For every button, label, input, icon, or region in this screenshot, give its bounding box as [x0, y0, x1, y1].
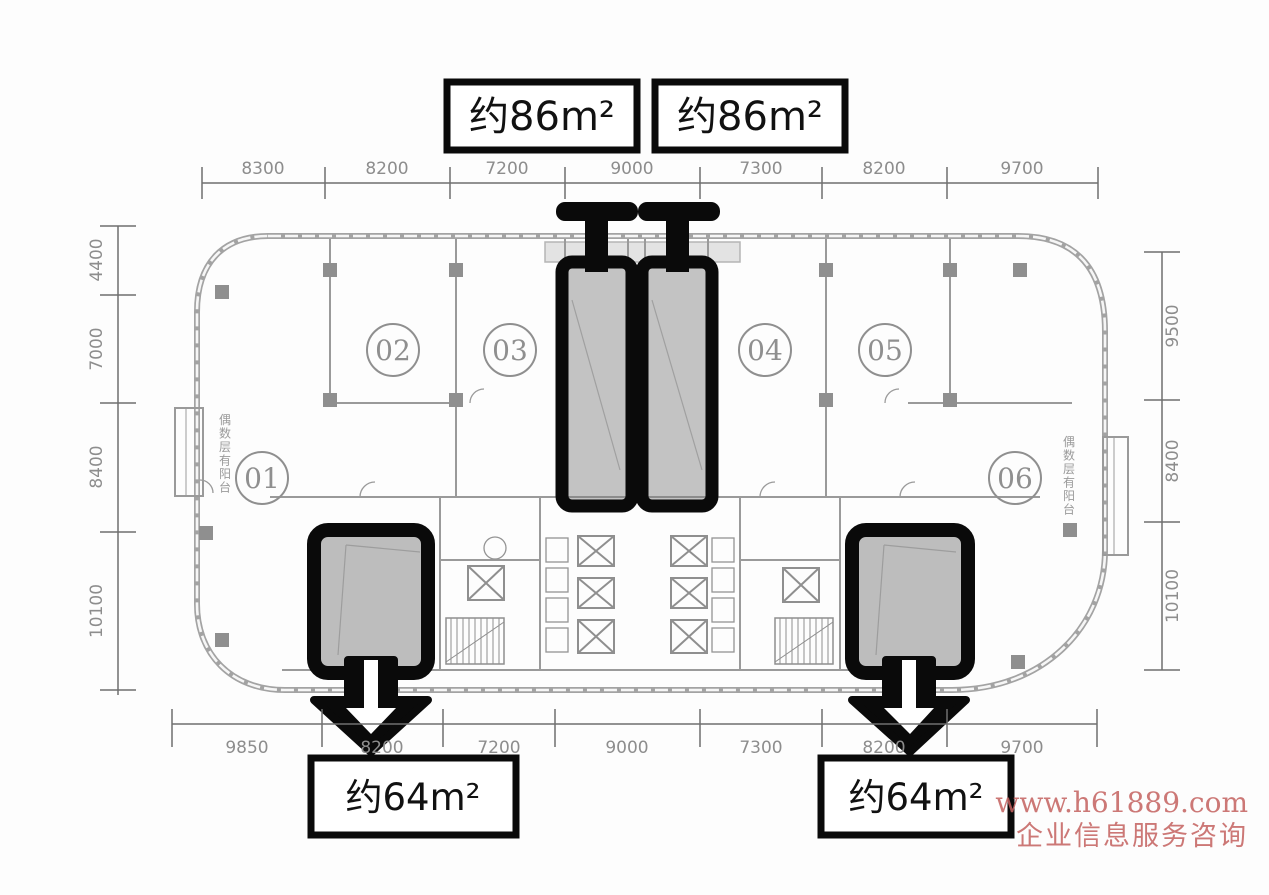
dim-left-1: 4400: [87, 238, 107, 281]
dim-left-2: 7000: [87, 327, 107, 370]
toilet-stalls: [484, 537, 734, 652]
unit-label-06: 06: [997, 462, 1033, 495]
unit-label-02: 02: [375, 334, 411, 367]
highlight-unit-64-left: [314, 530, 428, 673]
area-label-top-left: 约86m²: [469, 94, 615, 140]
area-label-bottom-left: 约64m²: [346, 776, 481, 819]
stairs: [446, 618, 833, 664]
watermark: www.h61889.com 企业信息服务咨询: [995, 786, 1248, 852]
highlight-unit-64-right: [852, 530, 968, 673]
dim-right-2: 8400: [1163, 439, 1183, 482]
unit-label-01: 01: [244, 462, 280, 495]
dim-top-4: 9000: [610, 159, 653, 179]
unit-label-04: 04: [747, 334, 783, 367]
dim-top-3: 7200: [485, 159, 528, 179]
dim-bottom-4: 9000: [605, 738, 648, 758]
floorplan-page: 01 02 03 04 05 06 偶数层有阳台 偶数层有阳台: [0, 0, 1269, 895]
dim-right-3: 10100: [1163, 569, 1183, 623]
dim-bottom-5: 7300: [739, 738, 782, 758]
area-label-bottom-right: 约64m²: [849, 776, 984, 819]
highlight-unit-86-left: [562, 262, 632, 506]
unit-label-05: 05: [867, 334, 903, 367]
area-label-top-right: 约86m²: [677, 94, 823, 140]
unit-label-03: 03: [492, 334, 528, 367]
balcony-note-right: 偶数层有阳台: [1063, 435, 1075, 517]
dim-right-1: 9500: [1163, 304, 1183, 347]
watermark-caption: 企业信息服务咨询: [1016, 821, 1248, 852]
dim-left-4: 10100: [87, 584, 107, 638]
floor-plan-canvas: 01 02 03 04 05 06 偶数层有阳台 偶数层有阳台: [0, 0, 1269, 895]
watermark-url: www.h61889.com: [995, 786, 1248, 819]
dim-bottom-1: 9850: [225, 738, 268, 758]
dim-top-6: 8200: [862, 159, 905, 179]
dim-top-7: 9700: [1000, 159, 1043, 179]
dim-top-1: 8300: [241, 159, 284, 179]
dim-left-3: 8400: [87, 445, 107, 488]
elevator-shafts: [468, 536, 819, 653]
highlight-unit-86-right: [642, 262, 712, 506]
dim-top-5: 7300: [739, 159, 782, 179]
balcony-note-left: 偶数层有阳台: [219, 413, 231, 495]
dim-top-2: 8200: [365, 159, 408, 179]
